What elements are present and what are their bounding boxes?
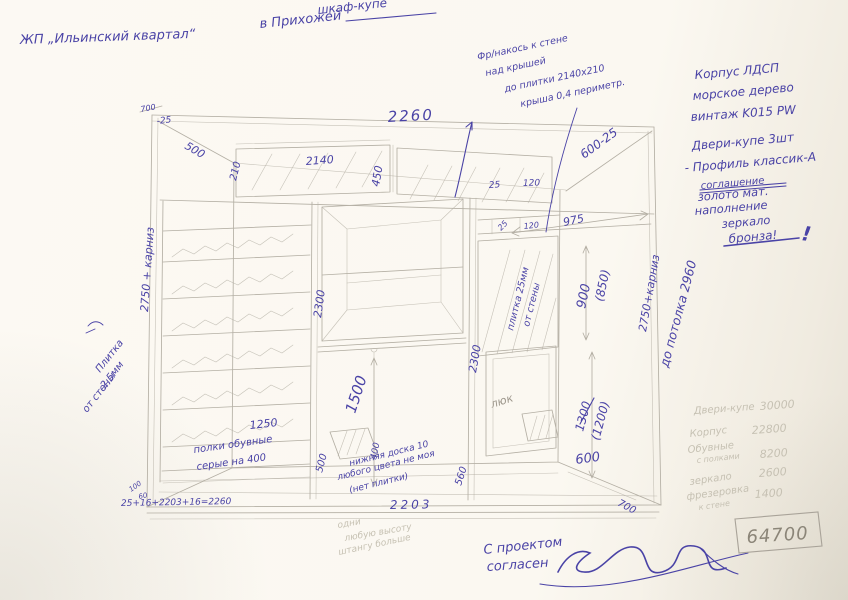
item-title-line2: в Прихожей [259, 8, 342, 31]
spec-doors-6: бронза! [728, 228, 778, 246]
dim-2300-left: 2300 [311, 289, 328, 319]
note-shoe-2: серые на 400 [196, 452, 267, 473]
dim-850: (850) [592, 268, 612, 302]
dim-m120: 120 [523, 178, 541, 189]
fr-note-1: Фр/накось к стене [476, 33, 569, 63]
dim-m25: 25 [489, 180, 501, 191]
dim-mezz-height: 450 [369, 165, 385, 188]
price-label-mirror: зеркало [689, 471, 733, 488]
approval-line2: согласен [486, 556, 549, 575]
dim-ceiling: до потолка 2960 [656, 259, 699, 370]
note-wall-3: от стены [81, 371, 119, 415]
middle-section [318, 199, 466, 459]
spec-doors-2: - Профиль классик-А [684, 150, 817, 175]
dim-975: 975 [562, 212, 585, 229]
dim-shoe-width: 1250 [249, 416, 278, 432]
dim-minus25: -25 [156, 115, 172, 127]
price-value-mirror: 2600 [758, 465, 787, 480]
dim-r25: 25 [496, 219, 510, 233]
dim-left-height: 2750 + карниз [138, 227, 157, 313]
dim-rod-1500: 1500 [342, 373, 371, 415]
dim-b500: 500 [314, 452, 330, 473]
dim-top-width: 2260 [387, 106, 434, 126]
dim-left-diag: 500 [183, 139, 208, 161]
dim-shelf-width: 2140 [305, 153, 334, 168]
dim-r120: 120 [523, 220, 539, 231]
price-label-doors: Двери-купе [692, 402, 755, 417]
dim-bottom-width: 2203 [390, 497, 433, 512]
dim-600-floor: 600 [574, 450, 601, 468]
dim-right-height: 2750+карниз [636, 254, 662, 333]
price-value-milling: 1400 [754, 486, 783, 501]
scanned-sketch-page: ЖП „Ильинский квартал“ шкаф-купе в Прихо… [0, 0, 848, 600]
right-section [468, 190, 651, 500]
dim-700-floor: 700 [616, 498, 638, 517]
price-label-body: Корпус [689, 425, 728, 440]
approval-line1: С проектом [483, 535, 563, 558]
project-title: ЖП „Ильинский квартал“ [19, 27, 196, 48]
dim-shelf-height: 210 [228, 161, 243, 182]
signature [558, 546, 726, 573]
spec-doors-1: Двери-купе 3шт [690, 130, 795, 153]
price-total: 64700 [746, 523, 810, 548]
label-hatch-door: люк [488, 391, 515, 411]
exclamation-mark: ! [800, 221, 812, 246]
dim-right-diag: 600-25 [578, 125, 621, 161]
price-value-body: 22800 [751, 422, 787, 437]
price-value-shoe: 8200 [759, 446, 788, 461]
dim-bottom-formula: 25+16+2203+16=2260 [121, 497, 232, 509]
spec-body-2: морское дерево [692, 80, 794, 103]
dim-b560: 560 [453, 465, 469, 487]
spec-body-1: Корпус ЛДСП [694, 61, 780, 82]
wardrobe-sketch: ЖП „Ильинский квартал“ шкаф-купе в Прихо… [0, 0, 848, 600]
pencil-note-1: одни [337, 517, 362, 531]
price-value-doors: 30000 [759, 398, 795, 413]
dim-top-small: 700 [140, 102, 157, 114]
dim-900: 900 [574, 282, 594, 309]
spec-body-3: винтаж K015 PW [690, 103, 797, 124]
